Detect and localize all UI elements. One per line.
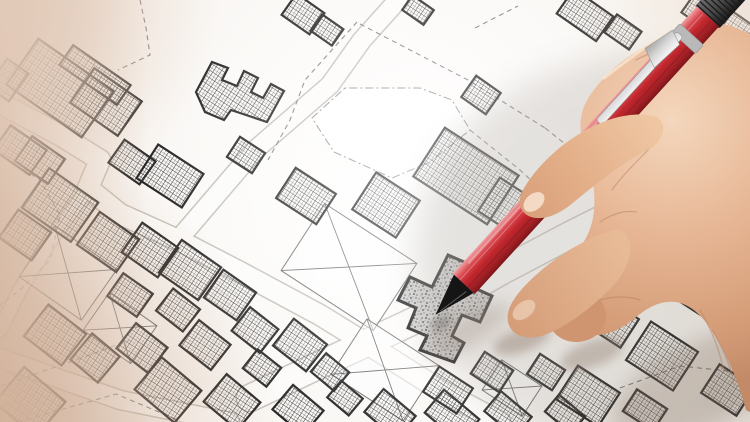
scene-svg: [0, 0, 750, 422]
vignette-top-left: [0, 0, 260, 240]
screenshot-root: [0, 0, 750, 422]
